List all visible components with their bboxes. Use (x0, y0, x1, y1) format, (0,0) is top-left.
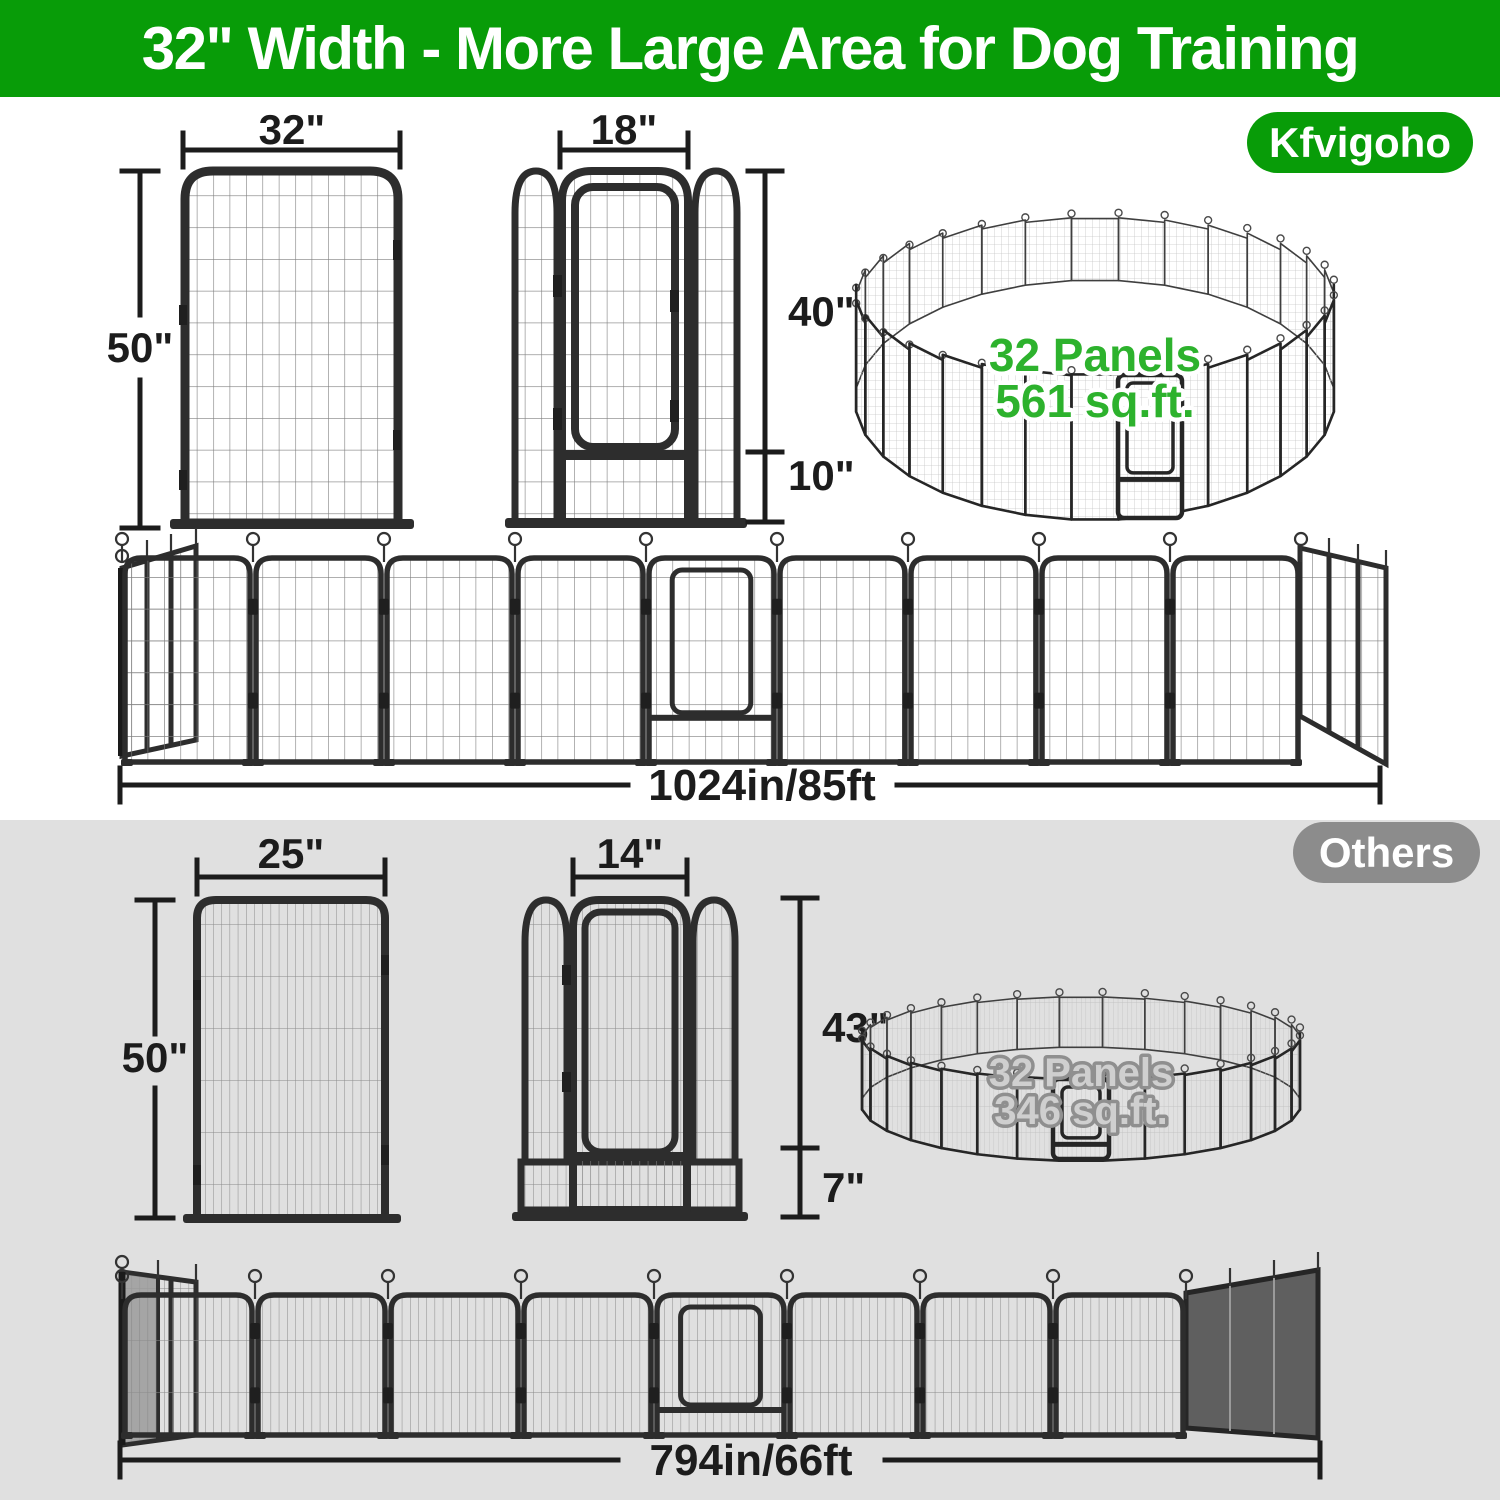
others-row-length-label: 794in/66ft (650, 1436, 853, 1485)
panel-width-label: 32" (259, 106, 326, 153)
others-panel-diagram: 25" 50" (122, 830, 401, 1223)
dim-panel-width: 32" (183, 106, 400, 167)
panel-row-diagram (116, 533, 1307, 766)
panel-diagram: 32" 50" (107, 106, 414, 529)
dim-others-door-width: 14" (573, 830, 687, 894)
others-panel-height-label: 50" (122, 1034, 189, 1081)
kfvigoho-diagrams: 32" 50" (0, 100, 1500, 820)
dim-others-panel-width: 25" (197, 830, 385, 894)
dim-row-length: 1024in/85ft (120, 761, 1380, 810)
others-door-bottom-label: 7" (822, 1164, 865, 1211)
banner-title: 32" Width - More Large Area for Dog Trai… (142, 14, 1358, 83)
door-height-label: 40" (788, 288, 855, 335)
others-panel-width-label: 25" (258, 830, 325, 877)
dim-door-width: 18" (560, 106, 688, 167)
others-panel-row-diagram (116, 1270, 1192, 1439)
panel-mesh (185, 171, 398, 523)
top-banner: 32" Width - More Large Area for Dog Trai… (0, 0, 1500, 97)
row-length-label: 1024in/85ft (648, 761, 876, 810)
door-bottom-label: 10" (788, 452, 855, 499)
dim-door-heights: 40" 10" (748, 171, 855, 522)
door-width-label: 18" (591, 106, 658, 153)
dim-others-row-length: 794in/66ft (120, 1436, 1320, 1485)
door-panel-diagram: 18" 40" 10" (505, 106, 855, 528)
panel-height-label: 50" (107, 324, 174, 371)
others-door-width-label: 14" (597, 830, 664, 877)
ring-panels-label: 32 Panels (989, 329, 1201, 381)
dim-panel-height: 50" (107, 171, 174, 528)
playpen-infographic: 32" Width - More Large Area for Dog Trai… (0, 0, 1500, 1500)
dim-others-panel-height: 50" (122, 900, 189, 1218)
others-door-panel-diagram: 14" 43" 7" (512, 830, 889, 1221)
panel-foot (170, 519, 414, 529)
others-ring-area-label: 346 sq.ft. (994, 1089, 1167, 1133)
ring-area-label: 561 sq.ft. (995, 375, 1194, 427)
others-folded-panels-right (1186, 1252, 1318, 1438)
folded-panels-right (1300, 538, 1386, 764)
others-diagrams: 25" 50" 14" (0, 820, 1500, 1500)
